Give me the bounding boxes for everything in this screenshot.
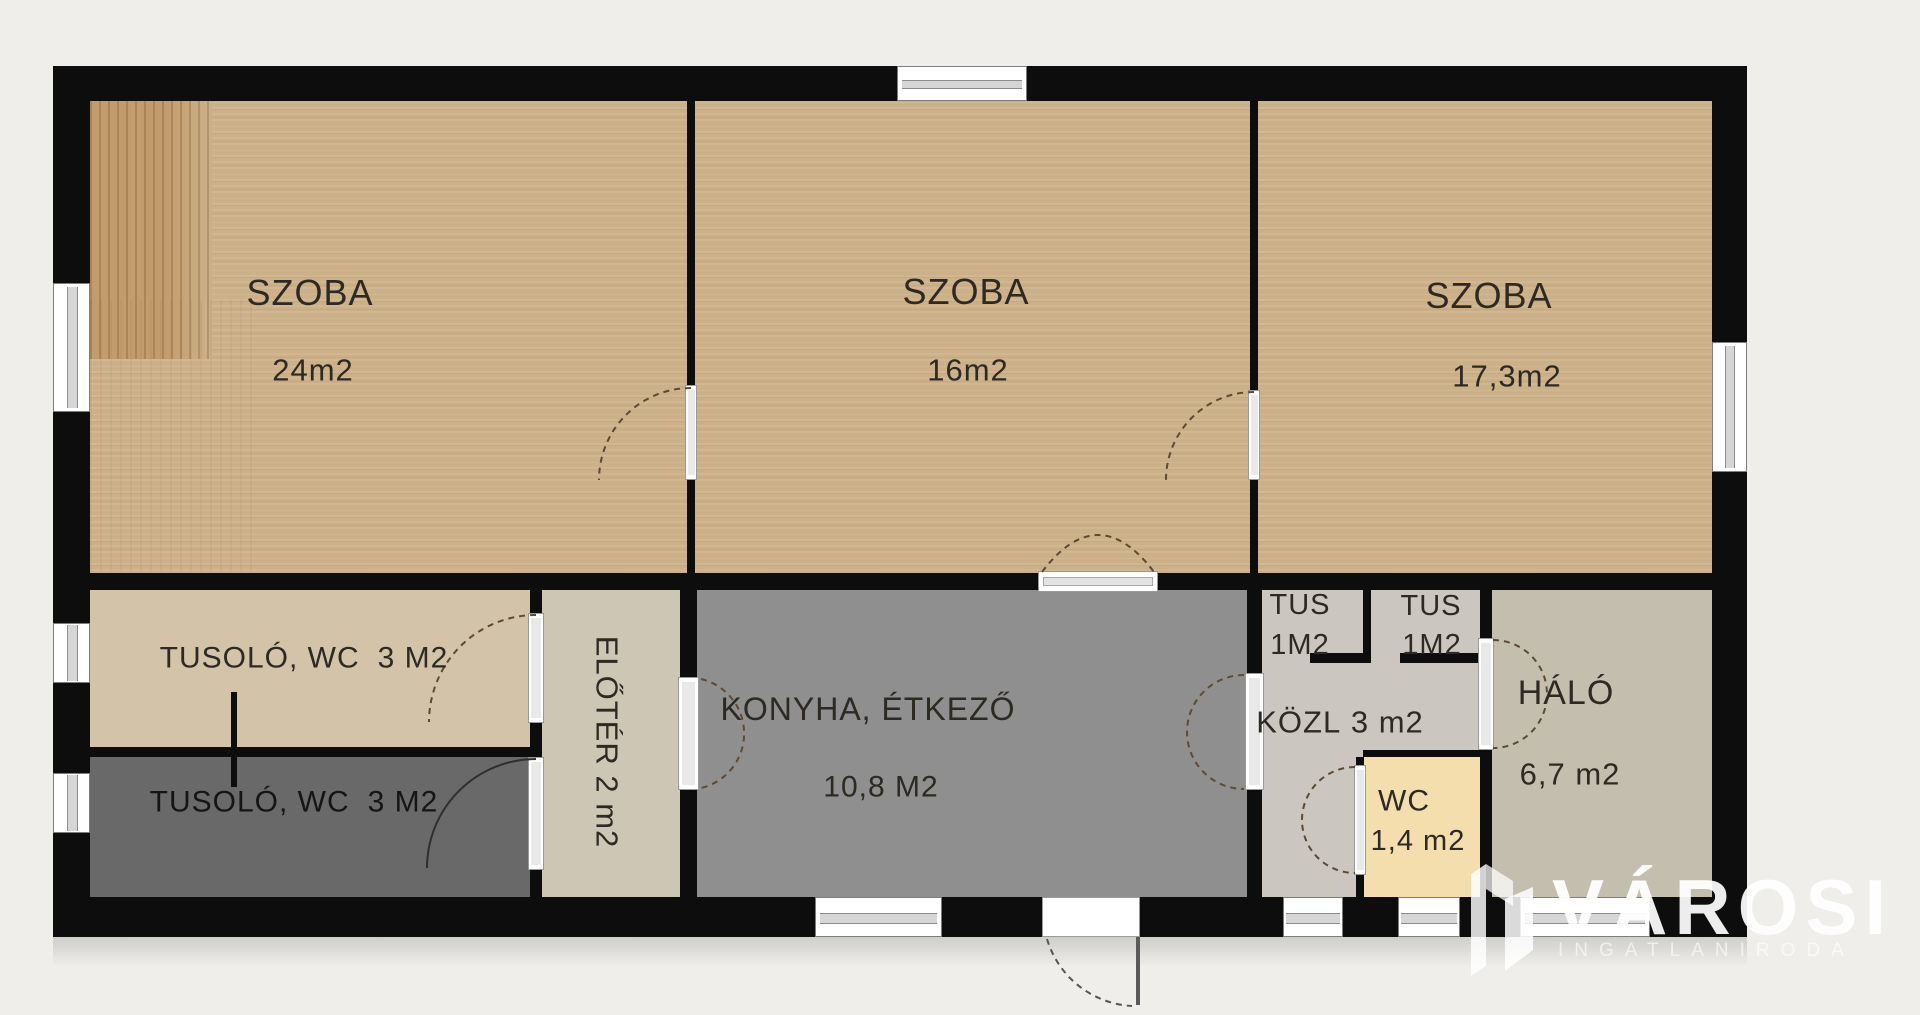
room-floor-szoba2 — [695, 101, 1250, 573]
label-szoba1-name: SZOBA — [246, 274, 373, 312]
door-opening-szoba2-szoba3 — [1248, 390, 1260, 480]
wall-wc-left-1 — [1356, 757, 1364, 765]
wall-divider-a — [90, 573, 1038, 590]
wall-szoba1-szoba2-a — [687, 101, 695, 385]
room-floor-halo — [1492, 590, 1712, 897]
window-bottom-konyha — [815, 897, 942, 937]
wall-konyha-right-1 — [1247, 590, 1262, 673]
wall-left-3 — [53, 683, 90, 773]
wall-bottom-1 — [53, 897, 815, 937]
label-szoba3-name: SZOBA — [1425, 277, 1552, 315]
wall-shower-partition — [231, 692, 237, 787]
wood-texture-faint — [90, 300, 258, 572]
wall-wc-top — [1363, 750, 1480, 757]
room-floor-szoba3 — [1258, 101, 1712, 573]
wall-tus-divider — [1363, 590, 1371, 653]
label-kozl: KÖZL 3 m2 — [1256, 707, 1424, 740]
label-tusolo-felso-name: TUSOLÓ, WC — [160, 641, 360, 674]
label-tusolo-felso: TUSOLÓ, WC3 M2 — [160, 642, 449, 674]
door-opening-konyha-szoba2 — [1038, 571, 1158, 592]
wall-halo-left-1 — [1480, 590, 1492, 638]
door-opening-entrance — [1042, 897, 1140, 937]
label-tusolo-also-name: TUSOLÓ, WC — [150, 785, 350, 818]
wall-konyha-right-2 — [1247, 790, 1262, 897]
wall-left-2 — [53, 412, 90, 623]
window-left-tusolo-felso — [53, 623, 90, 683]
wall-konyha-left-2 — [680, 790, 697, 897]
label-halo-name: HÁLÓ — [1518, 676, 1615, 712]
wall-left-4 — [53, 833, 90, 937]
wall-szoba2-szoba3-a — [1250, 101, 1258, 390]
label-tus2-area: 1M2 — [1402, 630, 1461, 660]
label-tusolo-also: TUSOLÓ, WC3 M2 — [150, 786, 439, 818]
room-floor-konyha — [697, 590, 1247, 897]
wall-tusolo-eloter-2 — [530, 723, 542, 757]
wall-tusolo-eloter-1 — [530, 590, 542, 613]
door-opening-wc — [1354, 765, 1366, 875]
door-opening-tusolo-felso — [528, 613, 544, 723]
label-wc-area: 1,4 m2 — [1371, 826, 1466, 856]
wall-bottom-4 — [1343, 897, 1398, 937]
label-szoba2-area: 16m2 — [927, 355, 1009, 388]
wall-tusolo-eloter-3 — [530, 870, 542, 897]
label-tusolo-also-area: 3 M2 — [368, 785, 439, 818]
door-opening-konyha-eloter — [678, 677, 699, 790]
label-halo-area: 6,7 m2 — [1520, 759, 1621, 792]
window-top — [897, 66, 1027, 101]
label-wc-name: WC — [1378, 785, 1430, 817]
label-szoba1-area: 24m2 — [272, 355, 354, 388]
wall-szoba1-szoba2-b — [687, 480, 695, 573]
wall-konyha-left-1 — [680, 590, 697, 677]
window-left-szoba1 — [53, 283, 90, 412]
label-tus1-area: 1M2 — [1270, 630, 1329, 660]
label-szoba2-name: SZOBA — [902, 273, 1029, 311]
wall-divider-b — [1158, 573, 1712, 590]
door-opening-tusolo-also — [528, 757, 544, 870]
label-tus1-name: TUS — [1270, 590, 1331, 620]
wall-bottom-2 — [942, 897, 1042, 937]
label-kozl-name: KÖZL — [1256, 705, 1341, 740]
wall-szoba2-szoba3-b — [1250, 480, 1258, 573]
door-opening-szoba1 — [685, 385, 697, 480]
label-szoba3-area: 17,3m2 — [1452, 361, 1561, 394]
wall-bottom-5 — [1460, 897, 1520, 937]
wall-left-1 — [53, 66, 90, 283]
wall-right-1 — [1712, 66, 1747, 342]
door-opening-halo — [1478, 638, 1494, 750]
label-konyha-area: 10,8 M2 — [823, 771, 938, 803]
wall-top-a — [53, 66, 897, 101]
window-left-tusolo-also — [53, 773, 90, 833]
label-tus2-name: TUS — [1401, 591, 1462, 621]
window-right-szoba3 — [1712, 342, 1747, 472]
window-bottom-kozl — [1283, 897, 1343, 937]
floor-plan-canvas: SZOBA 24m2 SZOBA 16m2 SZOBA 17,3m2 TUSOL… — [0, 0, 1920, 1015]
label-eloter: ELŐTÉR 2 m2 — [590, 636, 623, 849]
logo-subtitle-text: INGATLANIRODA — [1558, 940, 1855, 962]
wall-shadow — [53, 937, 1747, 967]
label-konyha-name: KONYHA, ÉTKEZŐ — [721, 693, 1016, 727]
wall-top-b — [1027, 66, 1747, 101]
room-floor-tusolo-also — [90, 757, 530, 897]
wall-wc-left-2 — [1356, 875, 1364, 897]
wall-bottom-3 — [1140, 897, 1283, 937]
label-eloter-area: 2 m2 — [589, 775, 624, 848]
label-kozl-area: 3 m2 — [1351, 705, 1424, 740]
window-bottom-wc — [1398, 897, 1460, 937]
wall-tusolo-mid — [90, 747, 530, 757]
label-eloter-name: ELŐTÉR — [589, 636, 624, 766]
wall-halo-left-2 — [1480, 750, 1492, 897]
label-tusolo-felso-area: 3 M2 — [378, 641, 449, 674]
